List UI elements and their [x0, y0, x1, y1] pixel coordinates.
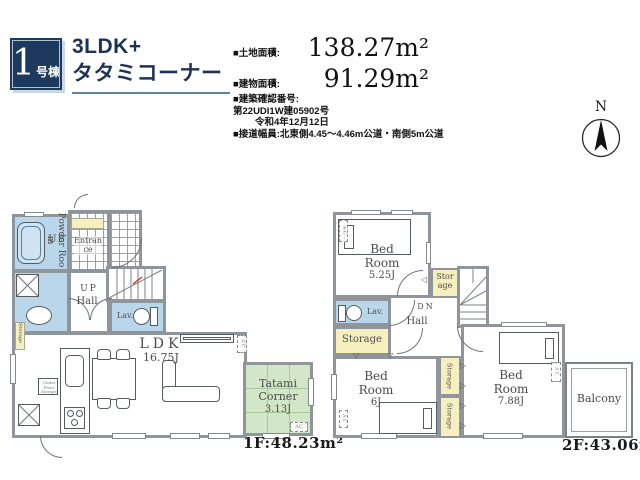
label-hall-1f: Hall — [70, 296, 104, 308]
label-storage-2f: Storage — [339, 334, 385, 346]
label-tatami: Tatami Corner — [252, 378, 304, 404]
label-bedroom1: Bed Room — [359, 242, 405, 270]
stove-icon — [64, 407, 85, 429]
label-storage-col2: Storage — [445, 402, 453, 430]
ac-unit-ldk: AC — [237, 335, 247, 353]
chair-icon — [116, 398, 130, 409]
door-indicator: ▷ — [460, 362, 466, 370]
floor2-area-label: 2F:43.06m² — [562, 436, 640, 454]
stairs-2f — [457, 266, 489, 328]
underfloor-storage: Under Floor Storage — [38, 378, 58, 395]
toilet-tank-1f — [150, 307, 158, 326]
window — [24, 212, 44, 217]
window — [391, 210, 413, 215]
land-area-row: ■土地面積: 138.27m² — [233, 34, 429, 62]
kitchen-sink-icon — [65, 355, 84, 387]
title-underline — [72, 92, 230, 94]
label-lav-2f: Lav. — [363, 307, 387, 316]
building-area-label: ■建物面積: — [233, 76, 280, 90]
door-indicator: ▷ — [460, 382, 466, 390]
label-up: UP — [74, 284, 104, 295]
door-indicator: ◁ — [421, 276, 427, 284]
stairs-1f — [106, 266, 166, 302]
toilet-icon-2f — [346, 305, 362, 321]
plan-title: 3LDK+ タタミコーナー — [72, 33, 223, 87]
confirmation-label: ■建築確認番号: — [233, 94, 518, 106]
chair-icon — [116, 349, 130, 360]
ac-unit-tatami: AC — [290, 422, 308, 432]
storage-1f-small: Storage — [15, 322, 25, 350]
label-balcony: Balcony — [571, 393, 627, 406]
door-indicator: ▽ — [387, 352, 393, 360]
window — [331, 374, 337, 400]
window — [501, 322, 547, 327]
window — [112, 433, 146, 439]
building-area-row: ■建物面積: 91.29m² — [233, 65, 429, 93]
floor1-area-label: 1F:48.23m² — [243, 434, 344, 452]
compass-needle-icon — [580, 146, 622, 163]
label-storage-stair: Storage — [434, 272, 456, 291]
road-frontage-info: ■接道幅員:北東側4.45〜4.46m公道・南側5m公道 — [233, 129, 518, 141]
compass-north-label: N — [580, 100, 622, 115]
ac-unit-bedroom3: AC — [551, 362, 561, 382]
label-bedroom2: Bed Room — [353, 369, 399, 397]
label-bedroom1-size: 5.25J — [359, 270, 405, 282]
label-bedroom3: Bed Room — [485, 368, 537, 396]
door-indicator: ▷ — [460, 422, 466, 430]
window — [170, 433, 200, 439]
label-dn: DN — [411, 302, 441, 311]
property-info: ■土地面積: 138.27m² ■建物面積: 91.29m² ■建築確認番号: … — [233, 34, 518, 140]
label-ldk-size: 16.75J — [130, 352, 192, 365]
plan-title-line1: 3LDK+ — [72, 33, 223, 60]
window — [308, 378, 314, 406]
floor1-plan: Storage Under Floor Storage AC AC UB Pow… — [12, 206, 314, 438]
window — [10, 354, 16, 384]
label-powder-room: Powder Room — [45, 212, 66, 268]
door-indicator: ▷ — [460, 402, 466, 410]
window — [351, 210, 381, 215]
plan-title-line2: タタミコーナー — [72, 60, 223, 87]
bathtub-icon — [17, 222, 45, 264]
chair-icon — [97, 349, 111, 360]
building-area-value: 91.29m² — [280, 65, 429, 93]
building-number-suffix: 号棟 — [36, 63, 60, 80]
label-bedroom3-size: 7.88J — [485, 396, 537, 408]
stairs-1f-treads — [109, 269, 163, 299]
floor2-plan: AC AC AC ◁ ▽ ▽ ▷ ▷ ▷ ▷ Bed Room 5.25J St… — [333, 206, 633, 438]
building-number: 1 — [12, 46, 35, 82]
label-entrance: Entrance — [74, 236, 102, 255]
label-lav-1f: Lav. — [114, 311, 136, 320]
back-door-swing — [40, 436, 62, 458]
label-hall-2f: Hall — [399, 316, 435, 328]
confirmation-date: 令和4年12月12日 — [233, 117, 518, 129]
compass: N — [580, 100, 622, 164]
door-indicator: ▽ — [353, 352, 359, 360]
land-area-value: 138.27m² — [280, 34, 429, 62]
kitchen-counter — [60, 348, 90, 434]
sofa-icon — [162, 386, 220, 402]
door-swing — [74, 194, 88, 208]
building-number-badge: 1 号棟 — [10, 38, 62, 90]
window — [426, 242, 431, 264]
ac-unit-bedroom2: AC — [339, 410, 348, 428]
ac-unit-bedroom1: AC — [339, 220, 348, 242]
floor-hatch-icon — [18, 404, 40, 426]
window — [483, 433, 523, 439]
stairs-2f-treads — [460, 269, 486, 325]
door-swing — [397, 328, 423, 354]
label-bedroom2-size: 6J — [353, 397, 399, 409]
chair-icon — [97, 398, 111, 409]
entrance-step — [71, 218, 104, 229]
label-storage-col1: Storage — [445, 362, 453, 390]
toilet-tank-2f — [338, 305, 346, 322]
window — [208, 433, 230, 439]
washbasin-icon — [26, 306, 52, 325]
land-area-label: ■土地面積: — [233, 45, 280, 59]
label-tatami-size: 3.13J — [252, 404, 304, 416]
washing-machine-icon — [16, 274, 39, 297]
bed-icon — [499, 332, 559, 364]
confirmation-number: 第22UDI1W建05902号 — [233, 106, 518, 118]
